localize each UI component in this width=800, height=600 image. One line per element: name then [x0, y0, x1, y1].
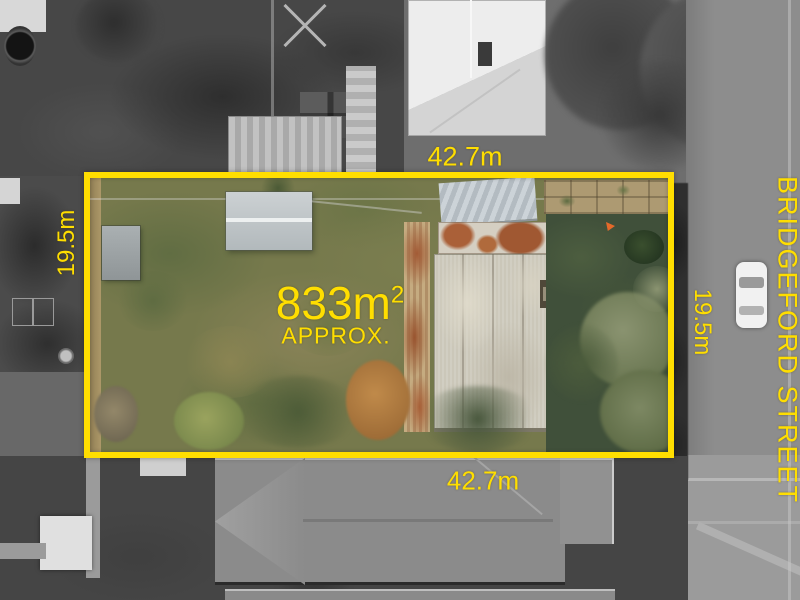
rear-yard-grayscale — [0, 0, 404, 176]
roof-ridge — [303, 519, 553, 522]
dimension-label-left: 19.5m — [53, 210, 81, 277]
trampoline — [4, 26, 36, 66]
neighbour-patio — [0, 372, 86, 456]
small-structure — [140, 456, 186, 476]
area-value: 833m — [276, 277, 391, 329]
roof-ridge — [470, 0, 472, 78]
path-segment — [0, 543, 46, 559]
water-tank — [58, 348, 74, 364]
dimension-label-top: 42.7m — [427, 142, 502, 173]
roof-hip-shading — [215, 458, 305, 585]
area-superscript: 2 — [391, 282, 404, 309]
dimension-label-right: 19.5m — [688, 289, 716, 356]
dimension-label-bottom: 42.7m — [447, 466, 519, 497]
car-rear-window — [739, 306, 764, 315]
aerial-photo: 42.7m 42.7m 19.5m 19.5m 833m2 APPROX. BR… — [0, 0, 800, 600]
front-house-roof-extension — [560, 458, 614, 544]
neighbour-structure — [0, 178, 20, 204]
street-name-label: BRIDGEFORD STREET — [772, 176, 800, 504]
parked-car — [736, 262, 767, 328]
car-windshield — [739, 277, 764, 288]
area-qualifier: APPROX. — [281, 323, 390, 350]
outbuilding-grayscale — [346, 66, 376, 176]
shed-roof-grayscale — [228, 116, 342, 178]
neighbour-house-white-roof — [408, 0, 546, 136]
garden-shed-white — [40, 516, 92, 570]
second-roof — [225, 589, 615, 600]
wire-crates — [12, 298, 54, 326]
chimney — [478, 42, 492, 66]
